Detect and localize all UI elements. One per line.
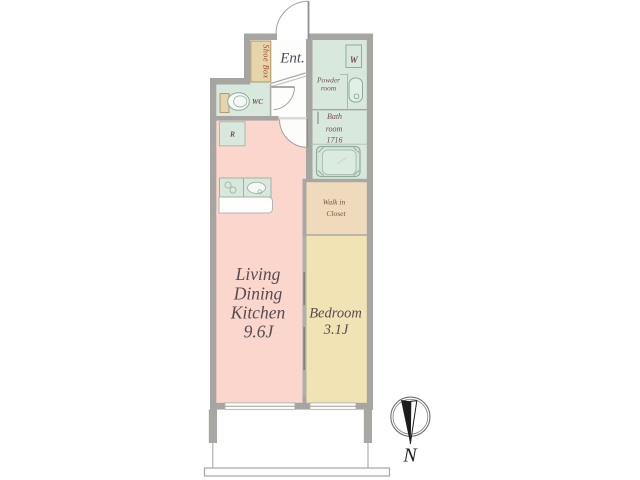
svg-text:WC: WC [252, 98, 263, 106]
svg-text:Closet: Closet [326, 209, 346, 218]
svg-text:W: W [350, 55, 359, 65]
svg-text:Bath: Bath [327, 112, 342, 121]
svg-text:room: room [326, 124, 343, 133]
svg-text:Walk in: Walk in [323, 198, 346, 207]
svg-text:room: room [321, 84, 337, 93]
svg-text:Ent.: Ent. [279, 51, 305, 67]
svg-text:9.6J: 9.6J [244, 322, 275, 342]
svg-text:1716: 1716 [327, 136, 343, 145]
svg-text:Living: Living [235, 264, 281, 284]
svg-text:N: N [402, 445, 418, 467]
svg-text:Bedroom: Bedroom [309, 306, 362, 322]
svg-text:R: R [229, 130, 235, 139]
svg-text:Dining: Dining [233, 284, 283, 304]
svg-text:Shoe Box: Shoe Box [262, 44, 271, 78]
svg-text:3.1J: 3.1J [323, 322, 349, 338]
svg-text:Kitchen: Kitchen [230, 303, 286, 323]
